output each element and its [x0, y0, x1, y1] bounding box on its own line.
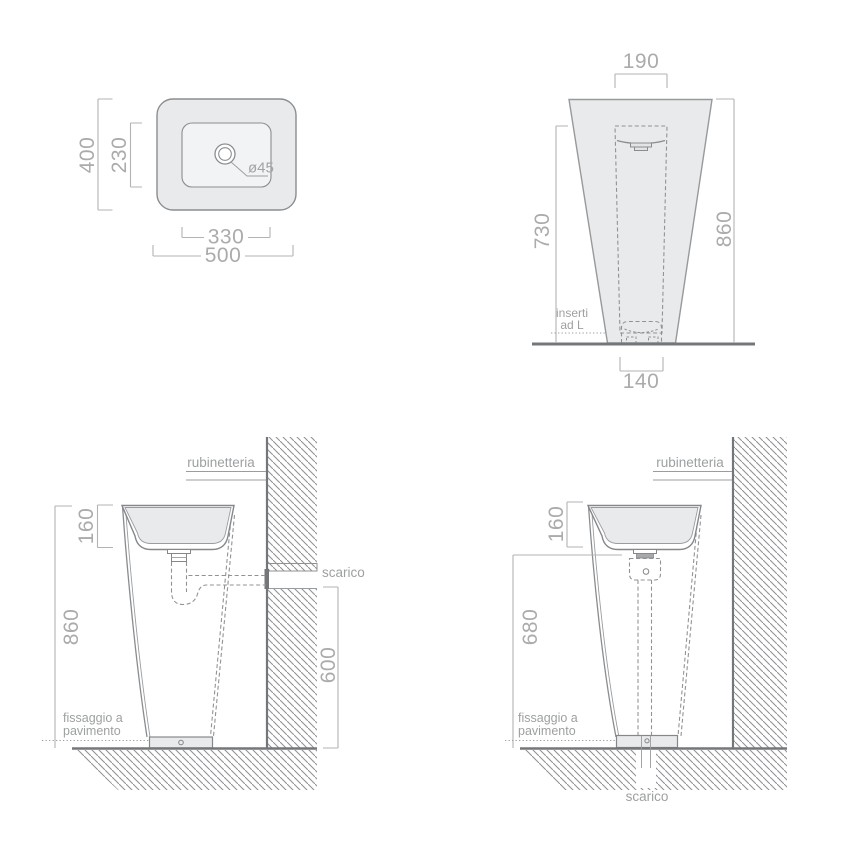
dim-label-overall-height: 860	[60, 609, 83, 646]
floor-drain-label: scarico	[626, 789, 669, 804]
plan-view: ø45 400 230 330 500	[76, 99, 296, 267]
drain-wall-flange	[265, 569, 270, 589]
wall-sleeve-strip	[268, 564, 318, 572]
base-plate	[617, 736, 678, 748]
dim-label-overall-height: 860	[713, 211, 736, 248]
drain-outlet-label: scarico	[322, 565, 365, 580]
pedestal-body	[569, 100, 712, 344]
faucet-spout	[653, 472, 732, 481]
floor-pipe-gap	[636, 750, 656, 788]
side-view-wall-drain: rubinetteria scarico 160 860 600	[42, 437, 365, 790]
dim-label-rim-height: 160	[545, 506, 568, 543]
dim-label-inner-depth: 230	[108, 137, 131, 174]
base-plate	[150, 737, 213, 748]
dim-label-drain-run-height: 680	[519, 609, 542, 646]
dim-label-overall-width: 500	[205, 244, 242, 267]
floor-fixing-note-line1: fissaggio a	[518, 711, 578, 725]
drain-plug-body	[635, 147, 648, 151]
insert-note-line2: ad L	[560, 318, 584, 332]
drain-flange	[168, 550, 191, 554]
drain-flange	[634, 550, 657, 554]
floor-hatch	[75, 750, 317, 790]
floor-fixing-note-line2: pavimento	[518, 724, 576, 738]
bowl-interior	[591, 508, 698, 544]
bowl-interior	[125, 508, 231, 544]
dim-label-drain-outlet-height: 600	[317, 647, 340, 684]
wall-hatch-lower	[268, 589, 318, 749]
faucet-label: rubinetteria	[656, 455, 724, 470]
p-trap-outer-line	[172, 562, 267, 605]
dim-label-rim-height: 160	[75, 508, 98, 545]
floor-fixing-note-line1: fissaggio a	[63, 711, 123, 725]
drain-plug-flange	[631, 143, 652, 147]
dim-label-base-width: 140	[623, 370, 660, 393]
siphon-screw-icon	[643, 569, 649, 575]
technical-drawing-sheet: ø45 400 230 330 500 190 730	[0, 0, 861, 852]
dim-label-inner-height: 730	[531, 213, 554, 250]
dim-line-140	[620, 357, 663, 371]
washbasin-technical-drawing: ø45 400 230 330 500 190 730	[0, 0, 861, 852]
side-view-floor-drain: rubinetteria 160 680 fissaggio a p	[505, 437, 787, 804]
dim-line-230	[131, 123, 143, 187]
dim-line-160	[98, 505, 114, 548]
faucet-label: rubinetteria	[187, 455, 255, 470]
floor-fixing-note-line2: pavimento	[63, 724, 121, 738]
dim-label-overall-depth: 400	[76, 137, 99, 174]
faucet-spout	[186, 472, 266, 481]
wall-hatch	[734, 437, 788, 748]
drain-diameter-label: ø45	[248, 160, 274, 177]
wall-hatch-upper	[268, 437, 318, 563]
drain-collar	[637, 554, 654, 559]
drain-hole-outer	[215, 144, 235, 164]
front-view: 190 730 860 140 inserti ad L	[531, 50, 755, 393]
dim-line-190	[615, 74, 667, 88]
dim-line-160	[567, 502, 583, 547]
dim-label-top-width: 190	[623, 50, 660, 73]
